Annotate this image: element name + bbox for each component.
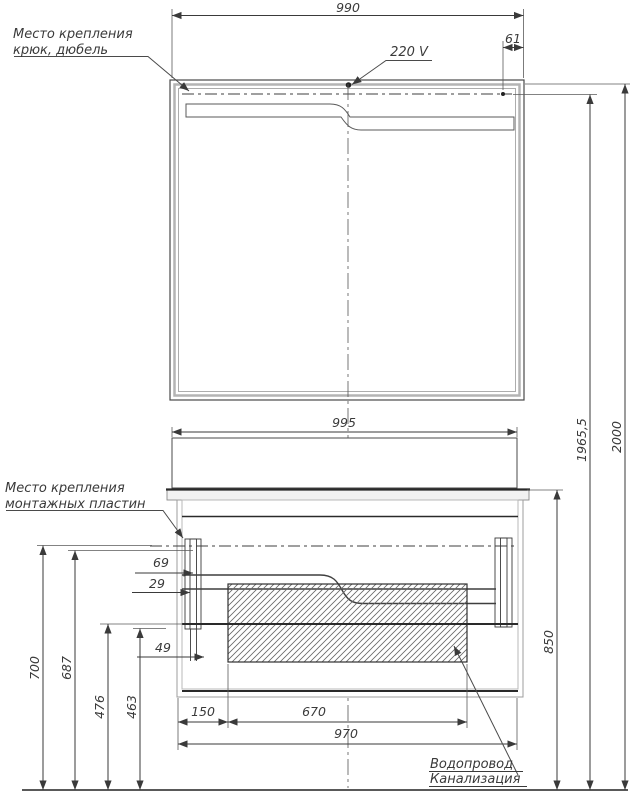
plates-note-line2: монтажных пластин [5, 497, 146, 512]
hook-note-leader [14, 57, 189, 92]
dim-49-label: 49 [155, 640, 171, 655]
drawing-canvas: Место крепления крюк, дюбель 990 220 V 6… [0, 0, 630, 800]
dim-687-label: 687 [59, 656, 74, 680]
plumbing-note-line2: Канализация [430, 772, 521, 787]
plates-note-line1: Место крепления [5, 481, 125, 496]
dim-463-label: 463 [124, 695, 139, 719]
power-point-dot [346, 82, 352, 88]
dim-700-label: 700 [27, 656, 42, 680]
countertop [166, 438, 530, 500]
vanity-installation-drawing: Место крепления крюк, дюбель 990 220 V 6… [0, 0, 630, 800]
dim-29-label: 29 [149, 576, 165, 591]
voltage-label: 220 V [390, 45, 429, 60]
dim-1965-label: 1965,5 [574, 418, 589, 462]
dim-670-label: 670 [302, 704, 326, 719]
plates-note-leader [6, 511, 183, 539]
dim-995-label: 995 [332, 415, 356, 430]
dim-61-label: 61 [505, 31, 521, 46]
dim-69-label: 69 [153, 555, 169, 570]
hook-point-dot [501, 92, 505, 96]
dim-2000-label: 2000 [609, 421, 624, 453]
hook-note-line1: Место крепления [13, 27, 133, 42]
dim-850-label: 850 [541, 630, 556, 654]
plumbing-note-line1: Водопровод [430, 757, 513, 772]
dim-150-label: 150 [191, 704, 215, 719]
dim-990-label: 990 [336, 0, 360, 15]
dim-476-label: 476 [92, 695, 107, 719]
hook-note-line2: крюк, дюбель [13, 43, 108, 58]
dim-970-label: 970 [334, 726, 358, 741]
mirror-front-view [170, 80, 524, 400]
